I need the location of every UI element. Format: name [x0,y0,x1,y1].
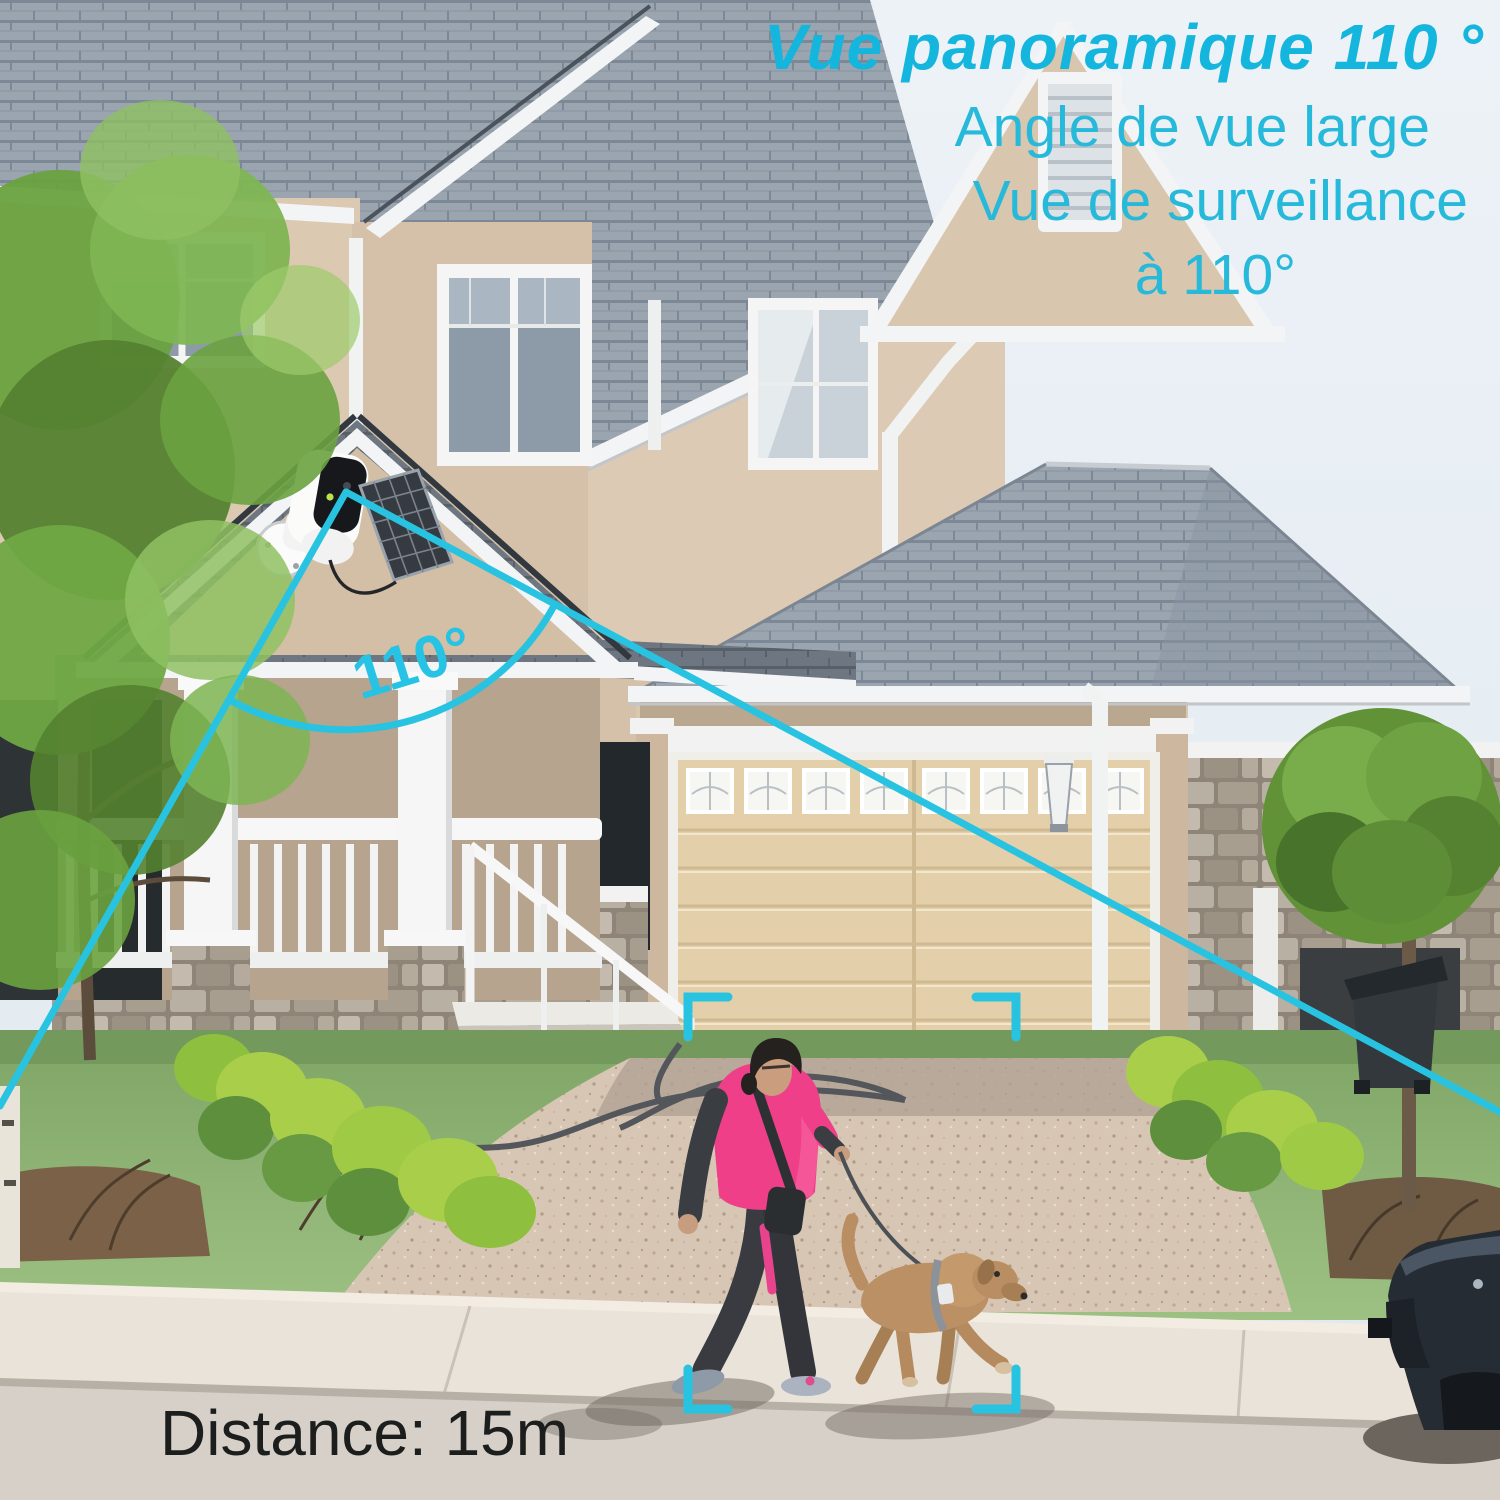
distance-label: Distance: 15m [160,1396,569,1470]
product-marketing-image: Vue panoramique 110 ° Angle de vue large… [0,0,1500,1500]
subtitle-line-3: à 110° [1135,242,1296,308]
window-center [437,264,592,466]
subtitle-line-2: Vue de surveillance [973,168,1468,234]
subtitle-line-1: Angle de vue large [955,94,1430,160]
window-right [748,298,878,470]
headline-text: Vue panoramique 110 ° [764,10,1484,84]
